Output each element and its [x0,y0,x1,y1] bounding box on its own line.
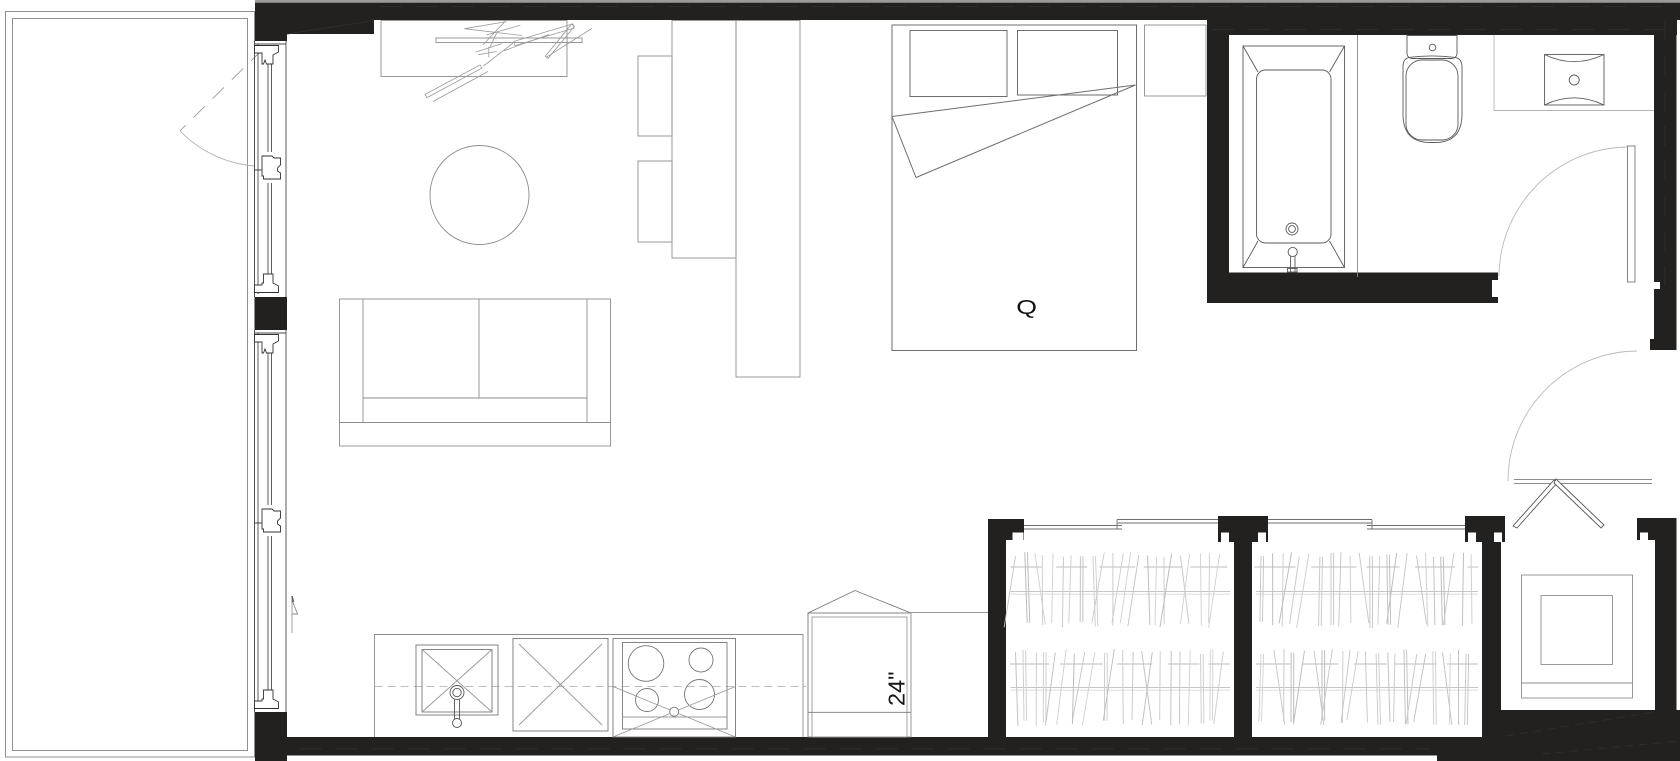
svg-text:24": 24" [884,672,910,706]
svg-text:Q: Q [1016,296,1037,319]
